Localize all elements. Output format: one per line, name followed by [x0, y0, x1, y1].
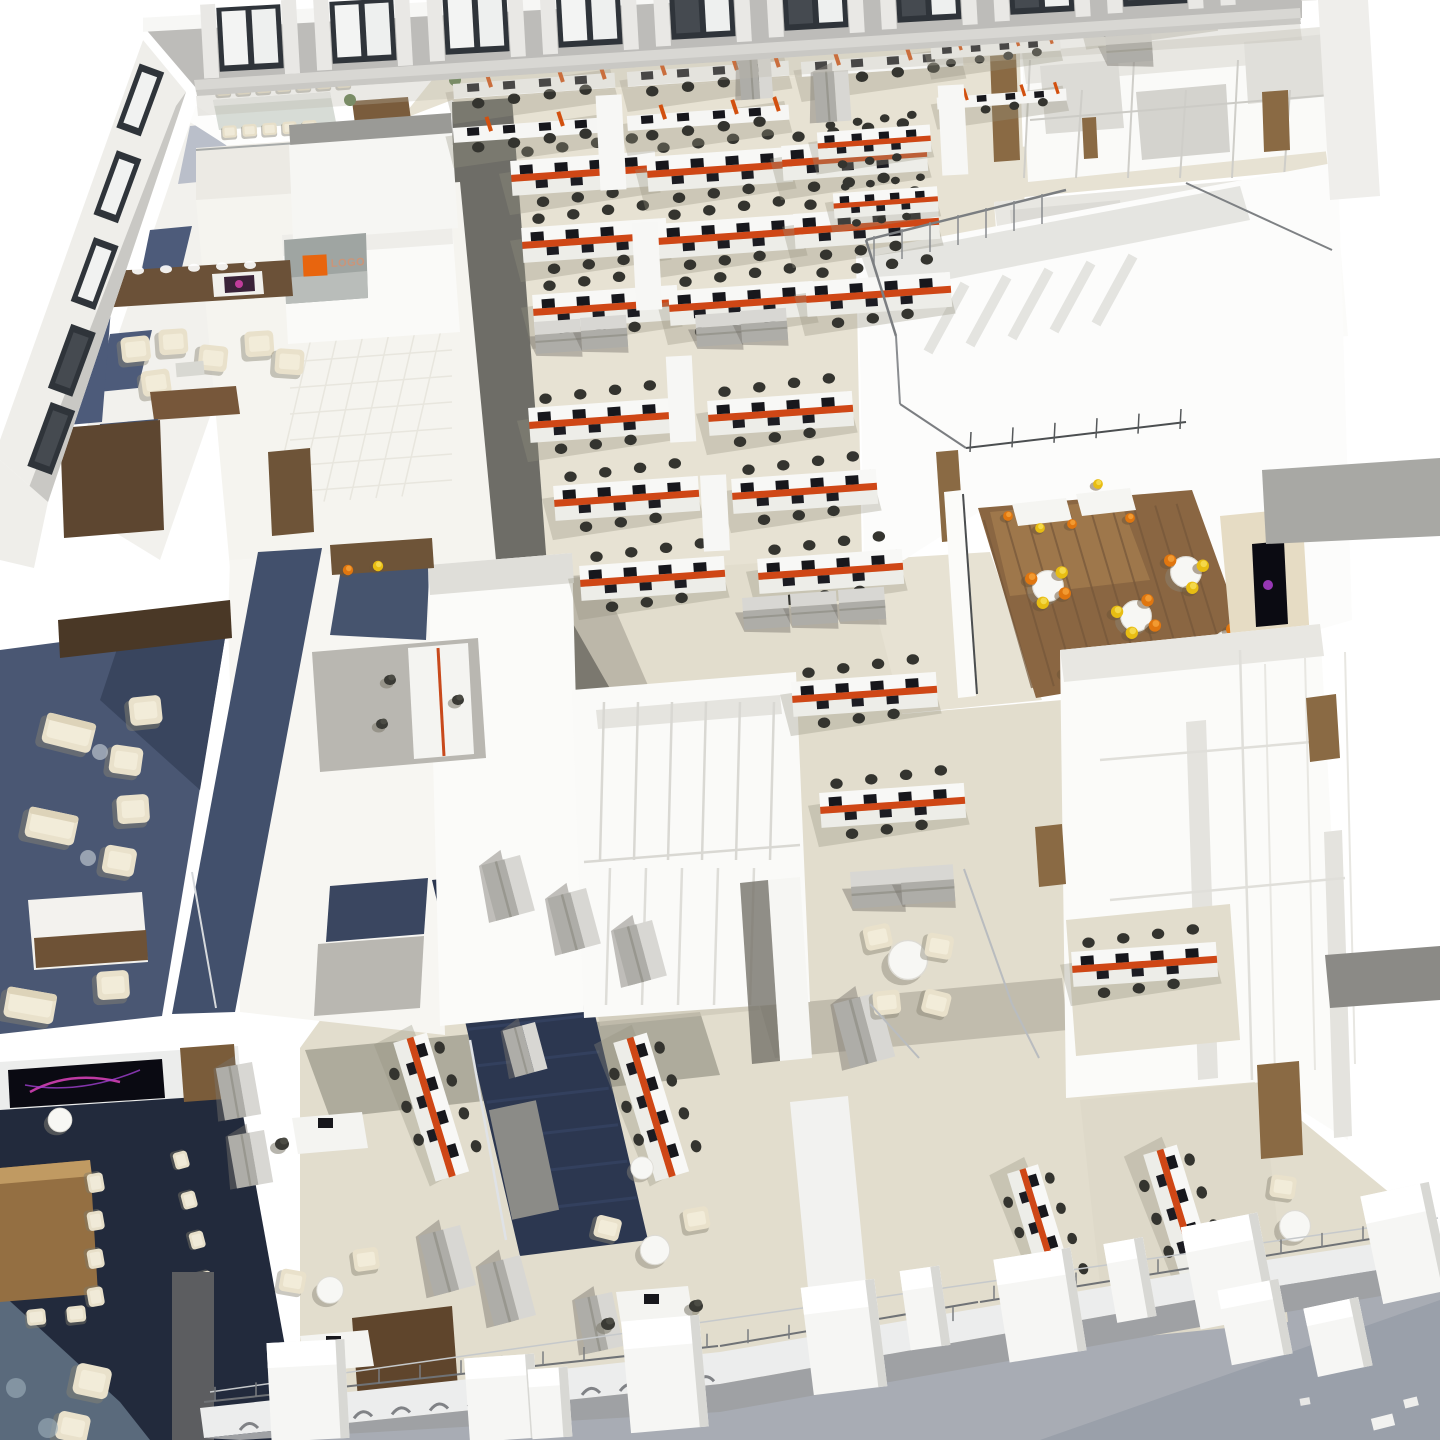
svg-text:LOGO: LOGO [331, 256, 366, 270]
